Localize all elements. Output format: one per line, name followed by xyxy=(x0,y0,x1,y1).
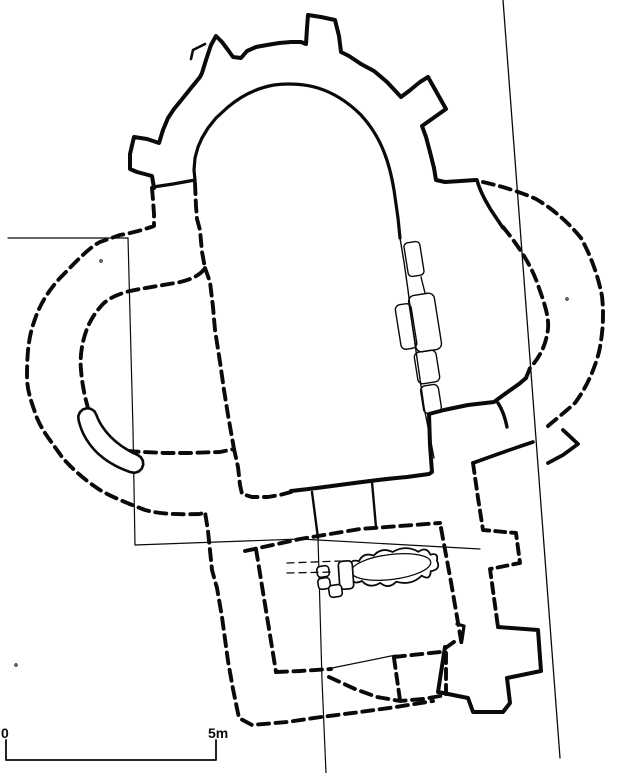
svg-text:0: 0 xyxy=(1,725,9,741)
svg-text:5m: 5m xyxy=(208,725,228,741)
